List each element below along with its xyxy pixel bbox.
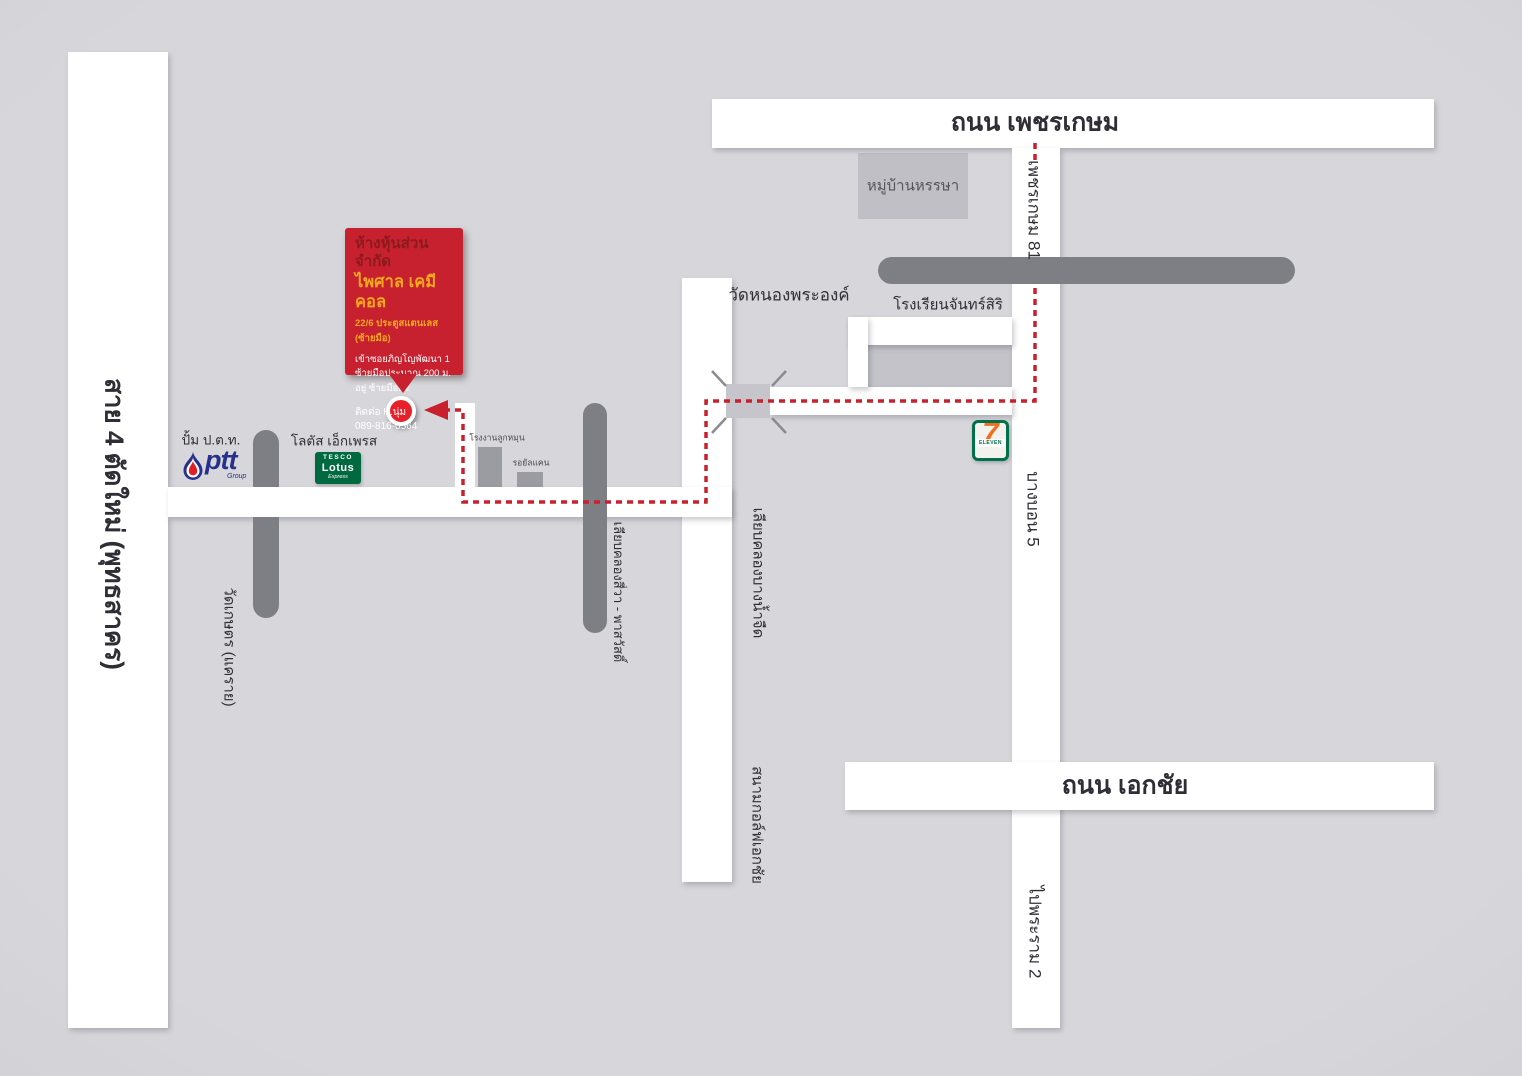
road-east-horizontal bbox=[770, 387, 1012, 415]
label-golf-ekachai: สนามกอล์ฟเอกชัย bbox=[747, 766, 766, 884]
road-destination-stub bbox=[455, 403, 475, 487]
bridge-deck bbox=[726, 384, 770, 418]
eleven-text: ELEVEN bbox=[975, 439, 1006, 447]
callout-direction-3: อยู่ ซ้ายมือค่ะ bbox=[355, 383, 455, 396]
label-lotus-express: โลตัส เอ็กเพรส bbox=[291, 434, 377, 451]
label-wat-nong-phra-ong: วัดหนองพระองค์ bbox=[728, 284, 849, 305]
callout-company-name: ไพศาล เคมีคอล bbox=[355, 273, 455, 313]
ptt-group-text: Group bbox=[227, 473, 246, 480]
label-to-rama2: ไปพระราม 2 bbox=[1024, 886, 1045, 979]
royal-can-block bbox=[517, 472, 543, 487]
label-royal-can: รอยัลแคน bbox=[513, 458, 550, 469]
khlong-siwa-bar bbox=[583, 403, 607, 633]
label-factory-lukmun: โรงงานลูกหมุน bbox=[469, 433, 524, 444]
callout-phone: 089-816-0564 bbox=[355, 421, 455, 432]
label-village-hansa: หมู่บ้านหรรษา bbox=[867, 178, 959, 197]
road-mid-horizontal bbox=[168, 487, 732, 517]
factory-lukmun-block bbox=[478, 447, 502, 487]
school-block bbox=[868, 345, 1012, 387]
ptt-wordmark: ptt bbox=[205, 445, 236, 476]
road-central-vertical bbox=[682, 278, 732, 882]
direction-map: ถนน เพชรเกษม ถนน เอกชัย สาย 4 ตัดใหม่ (พ… bbox=[0, 0, 1522, 1076]
tesco-text: TESCO bbox=[315, 455, 361, 462]
wat-kaset-bar-upper bbox=[253, 430, 279, 487]
label-wat-kaset: วัดเกษตร (แคราย) bbox=[219, 587, 238, 706]
seven-eleven-logo: 7 ELEVEN bbox=[972, 420, 1009, 461]
lotus-text: Lotus bbox=[315, 463, 361, 474]
callout-company-type: ห้างหุ้นส่วนจำกัด bbox=[355, 235, 455, 271]
wat-kaset-bar-lower bbox=[253, 517, 279, 618]
label-bangbon5: บางบอน 5 bbox=[1022, 471, 1043, 546]
tesco-lotus-logo: TESCO Lotus Express bbox=[315, 452, 361, 484]
label-school-chansiri: โรงเรียนจันทร์สิริ bbox=[893, 297, 1003, 316]
road-school-loop-left bbox=[848, 317, 868, 387]
callout-address: 22/6 ประตูสแตนเลส (ซ้ายมือ) bbox=[355, 316, 455, 346]
destination-callout: ห้างหุ้นส่วนจำกัด ไพศาล เคมีคอล 22/6 ประ… bbox=[345, 228, 463, 375]
soi-bar-phetkasem bbox=[878, 257, 1295, 284]
callout-contact: ติดต่อ K.นุ่ม bbox=[355, 406, 455, 420]
label-khlong-siwa: เลียบคลองสี่วา - พาสวัสดิ์ bbox=[610, 522, 626, 663]
label-phetkasem81: เพชรเกษม 81 bbox=[1023, 160, 1044, 260]
road-school-loop-top bbox=[848, 317, 1012, 345]
express-text: Express bbox=[315, 475, 361, 481]
label-ekachai-road: ถนน เอกชัย bbox=[1062, 770, 1189, 801]
label-khlong-bangnamjued: เลียบคลองบางน้ำจืด bbox=[748, 508, 767, 639]
ptt-flame-icon bbox=[182, 451, 204, 483]
callout-direction-2: ซ้ายมือประมาณ 200 ม. bbox=[355, 368, 455, 381]
label-phetkasem-road: ถนน เพชรเกษม bbox=[951, 107, 1119, 138]
callout-direction-1: เข้าซอยภิญโญพัฒนา 1 bbox=[355, 354, 455, 367]
ptt-logo: ptt Group bbox=[182, 449, 248, 485]
label-sai4-road: สาย 4 ตัดใหม่ (พุทธสาคร) bbox=[98, 378, 131, 670]
